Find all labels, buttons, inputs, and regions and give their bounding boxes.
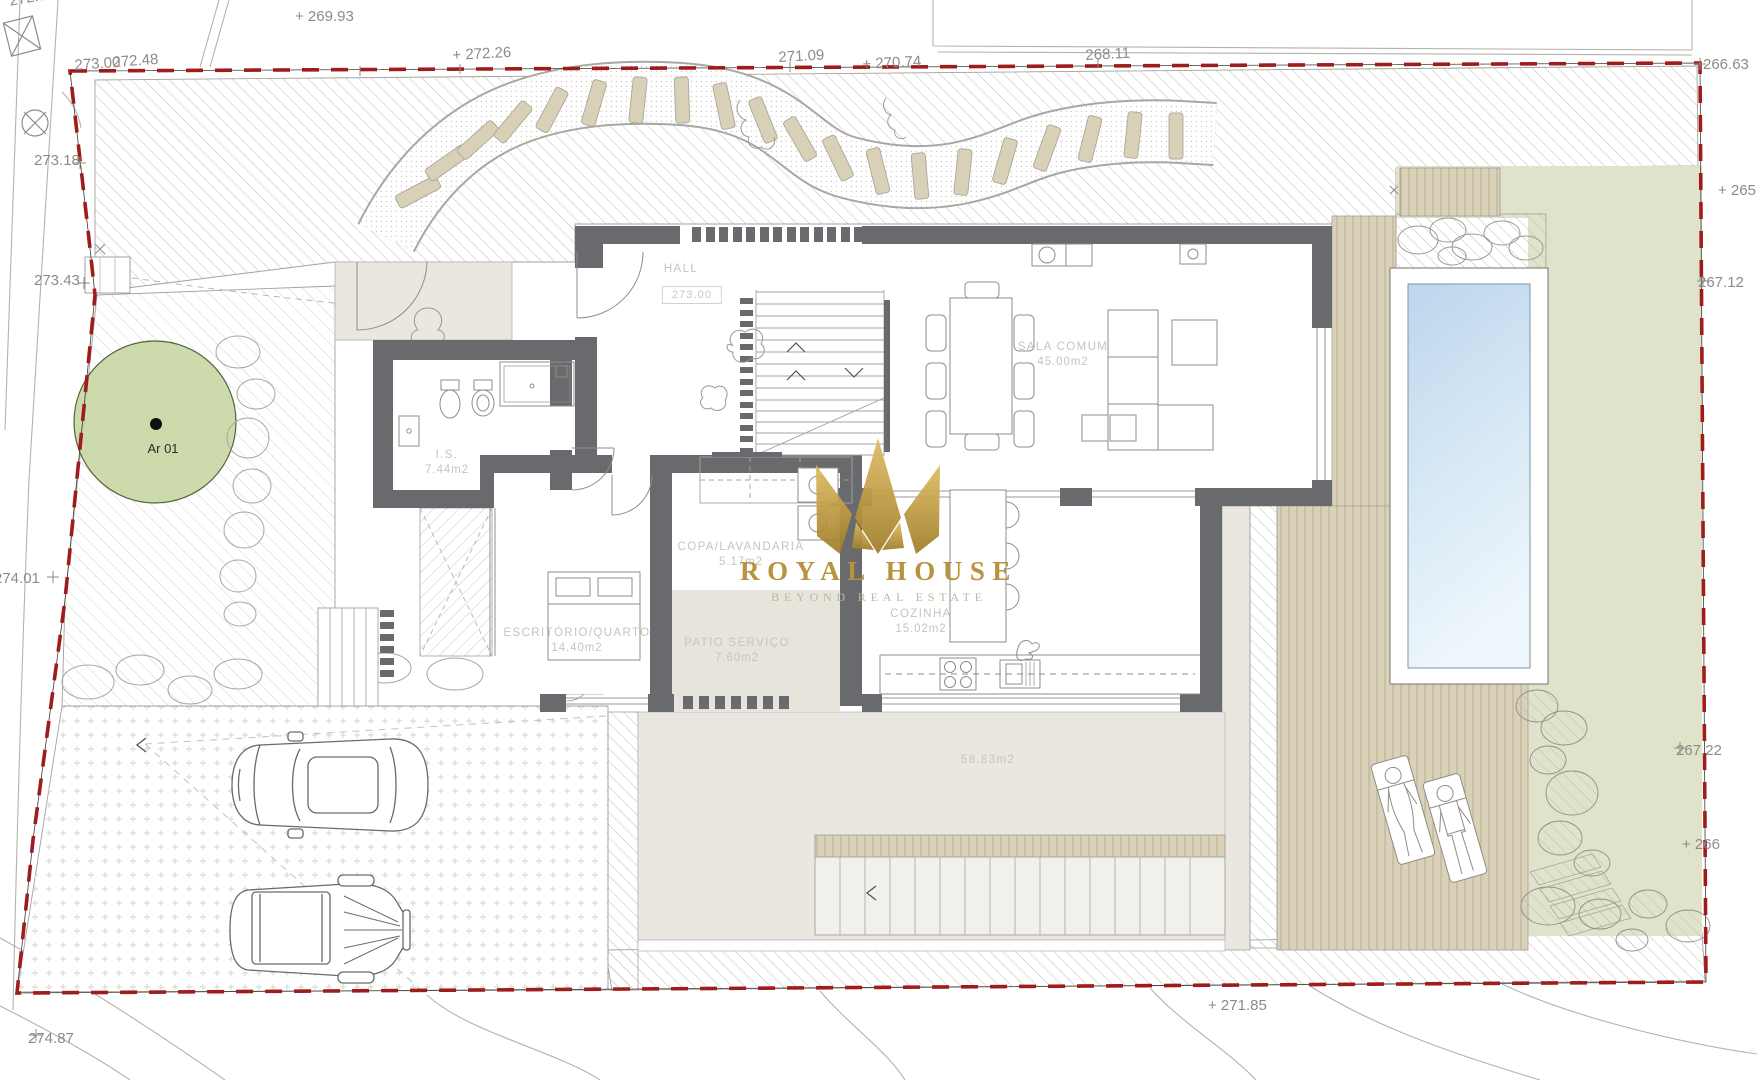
elevation-265: + 265 [1718,182,1756,199]
entrance-porch [335,262,512,350]
elevation-271-09: 271.09 [778,47,825,66]
elevation-267-12: 267.12 [1698,274,1744,291]
room-label-sala: SALA COMUM 45.00m2 [1018,340,1108,370]
room-label-hall: HALL [664,262,698,277]
timber-steps-topright [1390,168,1500,216]
room-label-patio: PATIO SERVIÇO 7.60m2 [684,636,790,666]
elevation-269-93: + 269.93 [295,8,354,25]
elevation-273-43: 273.43 [34,272,80,289]
elevation-273-18: 273.18 [34,152,80,169]
elevation-268-11: 268.11 [1085,45,1131,64]
elevation-274-87: 274.87 [28,1030,74,1047]
car-classic [230,875,410,983]
elevation-272-48: 272.48 [112,51,159,71]
elevation-272-26: + 272.26 [452,44,512,64]
car-suv [232,732,428,838]
hall-level-box: 273.00 [662,286,722,304]
pool-head-rocks [1396,214,1546,268]
elevation-266-63: 266.63 [1703,56,1749,73]
watermark-brand: ROYAL HOUSE [740,556,1018,587]
elevation-267-22: 267.22 [1676,742,1722,759]
room-label-cozinha: COZINHA 15.02m2 [890,607,951,637]
swimming-pool [1390,268,1548,684]
watermark-tagline: BEYOND REAL ESTATE [771,590,987,605]
elevation-274-01: 274.01 [0,570,40,587]
floor-plan-drawing [0,0,1757,1080]
dining-table [950,298,1012,434]
courtyard-lightwell [420,508,492,656]
room-label-is: I.S. 7.44m2 [425,448,469,478]
elevation-271-85: + 271.85 [1208,997,1267,1014]
garden-steps [318,608,378,706]
elevation-266: + 266 [1682,836,1720,853]
tree [74,341,236,503]
site-plan: 272.83 + 269.93 273.00 272.48 + 272.26 2… [0,0,1757,1080]
room-label-office: ESCRITÓRIO/QUARTO 14.40m2 [504,626,651,656]
terrace-area-label: 58.83m2 [961,753,1015,768]
terrace-steps [815,835,1225,935]
elevation-270-74: + 270.74 [862,53,922,73]
tree-label: Ar 01 [147,441,178,456]
